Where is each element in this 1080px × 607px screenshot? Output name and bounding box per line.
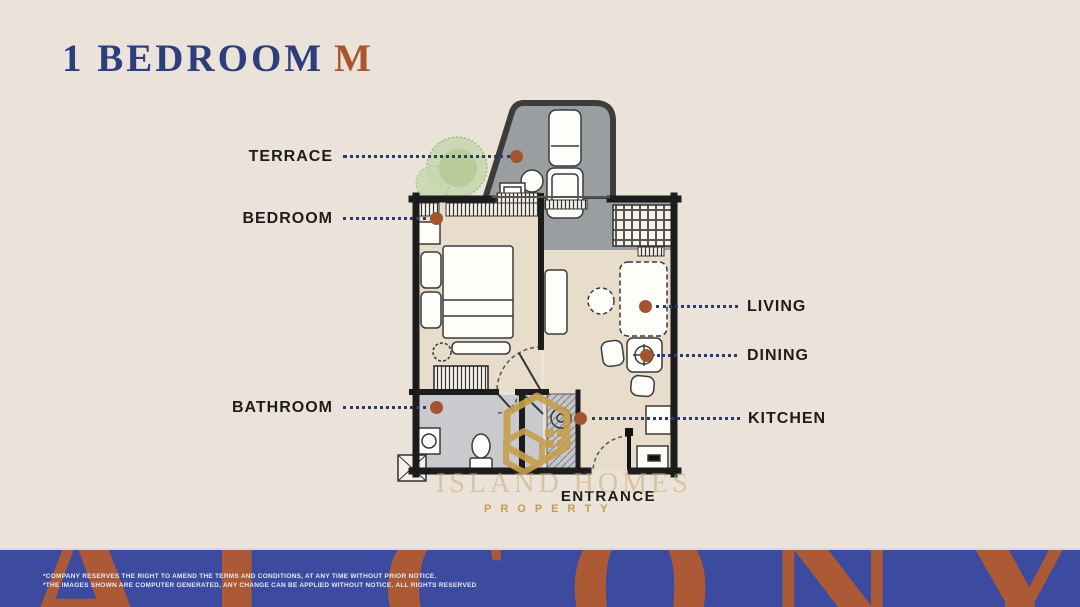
disclaimer-line-2: *THE IMAGES SHOWN ARE COMPUTER GENERATED… [43, 582, 476, 591]
footer-band: ALCONY *COMPANY RESERVES THE RIGHT TO AM… [0, 548, 1080, 607]
footer-disclaimer: *COMPANY RESERVES THE RIGHT TO AMEND THE… [43, 573, 476, 590]
disclaimer-line-1: *COMPANY RESERVES THE RIGHT TO AMEND THE… [43, 573, 476, 582]
floorplan-page: 1 BEDROOMM [0, 0, 1080, 607]
brand-logo-layer [0, 0, 1080, 607]
hexagon-house-logo-icon [506, 396, 567, 472]
watermark-sub-text: PROPERTY [484, 503, 617, 515]
watermark-brand-text: ISLAND HOMES [436, 468, 692, 500]
